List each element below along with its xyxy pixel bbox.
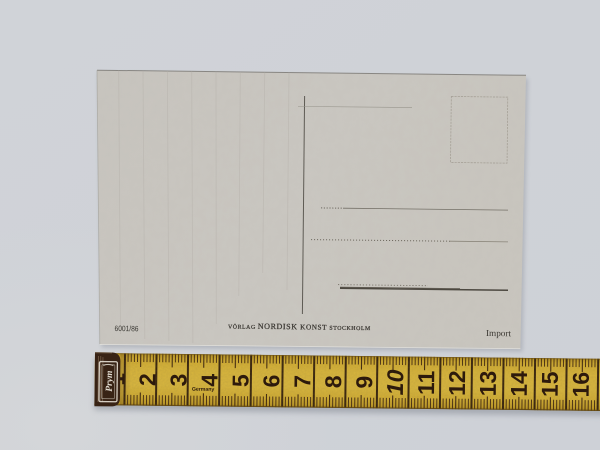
svg-text:9: 9 bbox=[351, 376, 377, 389]
svg-text:11: 11 bbox=[413, 370, 439, 395]
svg-text:5: 5 bbox=[227, 374, 253, 387]
svg-text:Prym: Prym bbox=[105, 371, 115, 392]
svg-text:16: 16 bbox=[568, 372, 594, 398]
svg-text:Germany: Germany bbox=[192, 387, 215, 393]
svg-text:2: 2 bbox=[134, 373, 160, 386]
svg-text:6001/86: 6001/86 bbox=[114, 324, 138, 333]
svg-text:3: 3 bbox=[165, 373, 191, 386]
svg-text:7: 7 bbox=[289, 375, 315, 388]
svg-text:8: 8 bbox=[320, 375, 346, 388]
svg-text:4: 4 bbox=[196, 374, 222, 387]
svg-text:6: 6 bbox=[258, 374, 284, 387]
svg-text:13: 13 bbox=[475, 371, 501, 397]
svg-text:15: 15 bbox=[537, 371, 563, 397]
svg-text:Import: Import bbox=[486, 328, 512, 338]
svg-text:10: 10 bbox=[382, 369, 408, 395]
svg-text:14: 14 bbox=[506, 371, 532, 397]
svg-text:12: 12 bbox=[444, 370, 470, 396]
